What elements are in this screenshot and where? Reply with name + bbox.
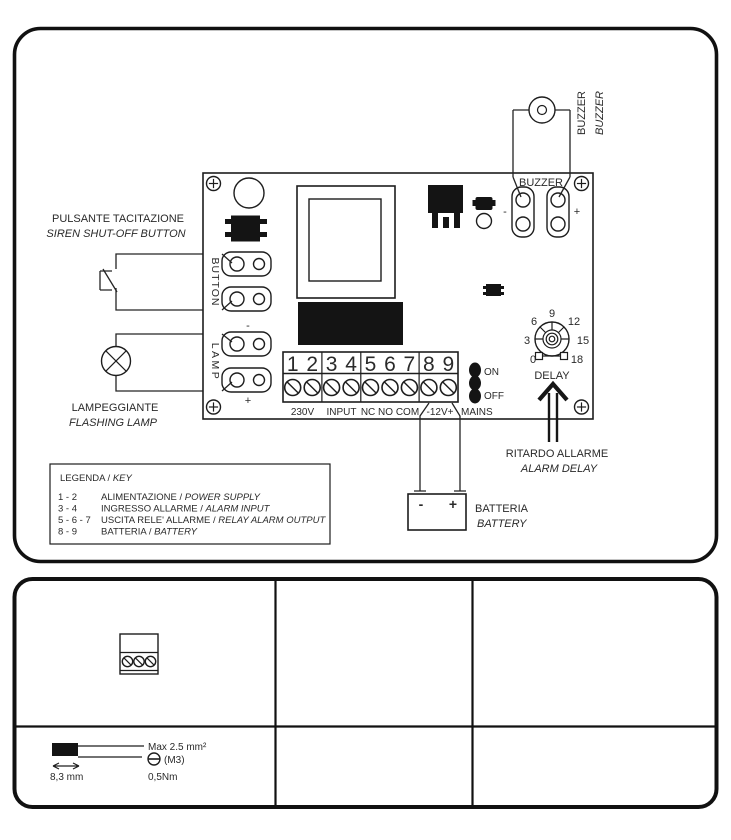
terminal-group-label-input: INPUT (327, 407, 357, 418)
legend-item-desc: BATTERIA / BATTERY (101, 527, 198, 538)
legend-item-pins: 1 - 2 (58, 492, 77, 503)
terminal-number: 4 (345, 353, 357, 376)
terminal-group-label-230v: 230V (291, 407, 315, 418)
delay-scale-15: 15 (577, 335, 589, 347)
wire-max-section-label: Max 2.5 mm² (148, 742, 207, 753)
voltage-regulator-component (428, 185, 463, 228)
flashing-lamp-label-it: LAMPEGGIANTE (72, 402, 159, 414)
wiring-diagram-svg: PULSANTE TACITAZIONE SIREN SHUT-OFF BUTT… (0, 0, 731, 840)
battery-label-en: BATTERY (477, 518, 527, 530)
flashing-lamp-circuit: LAMPEGGIANTE FLASHING LAMP (69, 334, 222, 429)
terminal-number: 3 (326, 353, 338, 376)
pcb-board: BUTTON LAMP - + BUZZER - + 1 2 3 4 5 6 7… (203, 173, 593, 419)
legend-item-pins: 3 - 4 (58, 504, 77, 515)
battery-minus-sign: - (419, 496, 424, 512)
delay-scale-12: 12 (568, 316, 580, 328)
small-ic-component (483, 284, 504, 296)
siren-shutoff-button-circuit: PULSANTE TACITAZIONE SIREN SHUT-OFF BUTT… (46, 213, 222, 310)
delay-scale-18: 18 (571, 354, 583, 366)
strip-length-label: 8,3 mm (50, 772, 83, 783)
flashing-lamp-label-en: FLASHING LAMP (69, 417, 158, 429)
buzzer-pad-minus (512, 187, 534, 237)
strip-length-arrow-icon (53, 763, 79, 769)
spec-panel-frame (15, 579, 717, 807)
switch-off-label: OFF (484, 391, 504, 402)
delay-scale-3: 3 (524, 335, 530, 347)
buzzer-label-it: BUZZER (576, 91, 588, 135)
terminal-number: 1 (287, 353, 299, 376)
lamp-pad-2 (222, 368, 271, 392)
delay-scale-6: 6 (531, 316, 537, 328)
legend-item-pins: 8 - 9 (58, 527, 77, 538)
switch-on-label: ON (484, 367, 499, 378)
battery-label-it: BATTERIA (475, 503, 529, 515)
legend-item-desc: ALIMENTAZIONE / POWER SUPPLY (101, 492, 261, 503)
terminal-number: 9 (442, 353, 454, 376)
alarm-delay-label-en: ALARM DELAY (520, 463, 598, 475)
screw-size-label: (M3) (164, 755, 185, 766)
button-pad-1 (222, 252, 271, 276)
buzzer-minus-sign: - (503, 206, 507, 218)
button-connector-label: BUTTON (209, 258, 221, 307)
legend-item-desc: USCITA RELE' ALLARME / RELAY ALARM OUTPU… (101, 515, 326, 526)
delay-scale-9: 9 (549, 308, 555, 320)
lamp-pad-1 (222, 332, 271, 356)
legend-item-pins: 5 - 6 - 7 (58, 515, 91, 526)
alarm-delay-label-it: RITARDO ALLARME (506, 448, 609, 460)
wire-insulation (52, 743, 78, 756)
battery-plus-sign: + (449, 496, 457, 512)
mains-label: MAINS (461, 407, 493, 418)
legend-item-desc: INGRESSO ALLARME / ALARM INPUT (101, 504, 271, 515)
terminal-number: 2 (306, 353, 318, 376)
lamp-connector-label: LAMP (209, 343, 221, 382)
delay-label: DELAY (534, 370, 570, 382)
siren-shutoff-label-it: PULSANTE TACITAZIONE (52, 213, 184, 225)
slotted-screw-icon (148, 753, 160, 765)
siren-shutoff-label-en: SIREN SHUT-OFF BUTTON (46, 228, 185, 240)
spec-panel: Max 2.5 mm² (M3) 0,5Nm 8,3 mm (15, 579, 717, 807)
torque-label: 0,5Nm (148, 772, 177, 783)
lamp-plus-sign: + (245, 395, 251, 407)
battery-circuit: - + BATTERIA BATTERY (408, 403, 529, 530)
terminal-group-label-relay: NC NO COM (361, 407, 419, 418)
terminal-number: 8 (423, 353, 435, 376)
terminal-block-icon (120, 634, 158, 674)
lamp-minus-sign: - (246, 320, 250, 332)
buzzer-label-en: BUZZER (594, 91, 606, 135)
button-pad-2 (222, 287, 271, 311)
lamp-symbol (102, 347, 131, 376)
buzzer-symbol (529, 97, 555, 123)
buzzer-pad-plus (547, 187, 569, 237)
terminal-group-label-12v: -12V+ (427, 407, 454, 418)
terminal-strip: 1 2 3 4 5 6 7 8 9 230V INPUT NC NO COM -… (283, 352, 458, 418)
relay-component (298, 302, 403, 345)
legend-box: LEGENDA / KEY 1 - 2 ALIMENTAZIONE / POWE… (50, 464, 330, 544)
battery-symbol (408, 494, 466, 530)
buzzer-plus-sign: + (574, 206, 580, 218)
legend-title: LEGENDA / KEY (60, 473, 132, 484)
terminal-number: 5 (365, 353, 377, 376)
delay-scale-0: 0 (530, 354, 536, 366)
pushbutton-symbol (100, 269, 117, 292)
wire-spec-diagram: Max 2.5 mm² (M3) 0,5Nm 8,3 mm (50, 742, 207, 783)
terminal-number: 6 (384, 353, 396, 376)
manual-page: PULSANTE TACITAZIONE SIREN SHUT-OFF BUTT… (0, 0, 731, 840)
terminal-number: 7 (404, 353, 416, 376)
